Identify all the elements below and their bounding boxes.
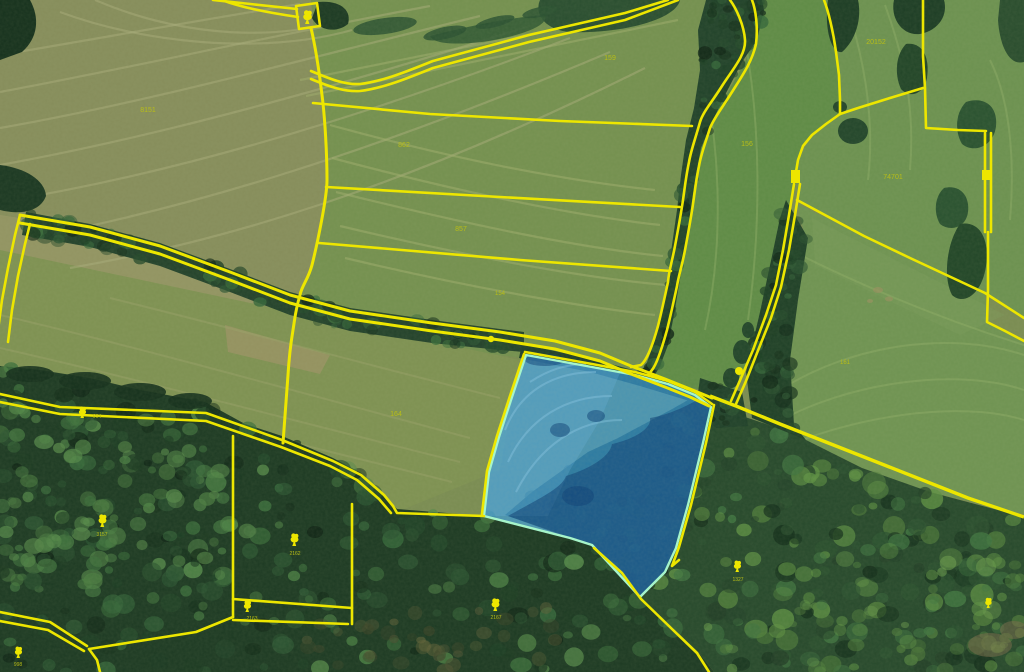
svg-text:154: 154 — [495, 291, 506, 297]
svg-text:857: 857 — [455, 226, 467, 233]
svg-text:74701: 74701 — [883, 174, 903, 181]
svg-text:161: 161 — [840, 360, 851, 366]
svg-text:2167: 2167 — [490, 615, 501, 621]
svg-text:998: 998 — [14, 662, 23, 668]
svg-text:20152: 20152 — [866, 39, 886, 46]
svg-text:156: 156 — [741, 141, 753, 148]
svg-text:862: 862 — [398, 142, 410, 149]
svg-text:8151: 8151 — [140, 107, 156, 114]
svg-text:2162: 2162 — [289, 551, 300, 557]
svg-text:994: 994 — [93, 414, 102, 420]
svg-text:1327: 1327 — [732, 577, 743, 583]
svg-text:164: 164 — [390, 411, 402, 418]
svg-text:3157: 3157 — [96, 532, 107, 538]
svg-text:2163: 2163 — [246, 616, 257, 622]
svg-text:159: 159 — [604, 55, 616, 62]
